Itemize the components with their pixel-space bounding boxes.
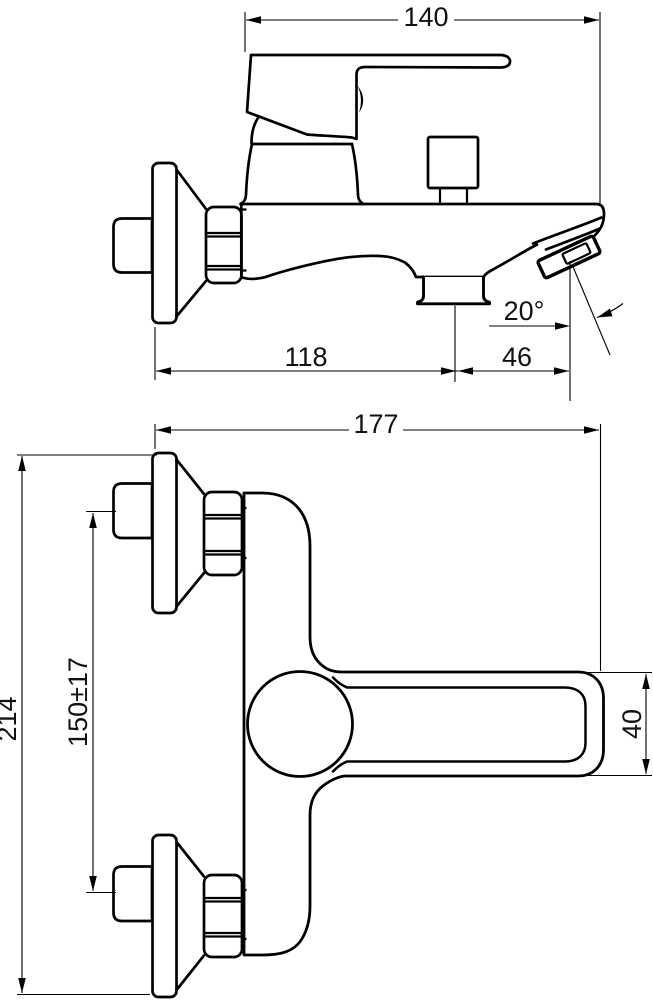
front-view (114, 453, 604, 997)
handle-back-curve (252, 117, 260, 144)
collar-right-edge (352, 144, 364, 204)
dim-150-arrow-top (89, 513, 97, 528)
check-valve-neck (440, 189, 467, 203)
dim-118-arrow-right (441, 367, 456, 375)
upper-escutcheon-plate (153, 453, 177, 613)
pipe-stub (114, 219, 153, 273)
dim-label-46: 46 (502, 342, 532, 372)
lower-hex-nut (204, 875, 242, 957)
dim-177-arrow-left (156, 426, 171, 434)
dim-40-arrow-top (642, 674, 650, 689)
dim-label-angle: 20° (504, 296, 545, 326)
dim-46: 46 (458, 342, 569, 375)
dim-214-arrow-bottom (18, 978, 26, 993)
lower-escutcheon-plate (153, 835, 177, 997)
escutcheon-cone-lower-edge (177, 281, 207, 317)
front-body-outline (244, 493, 604, 955)
dim-150-arrow-bottom (89, 876, 97, 891)
dim-label-40: 40 (617, 709, 647, 739)
dim-label-214: 214 (0, 696, 22, 741)
dim-140-arrow-right (584, 16, 599, 24)
drawing-page: 140 118 46 20° (0, 0, 653, 1000)
escutcheon-plate (153, 163, 177, 323)
lower-cone-top-edge (177, 842, 205, 877)
dim-46-arrow-left (458, 367, 473, 375)
handle-indicator-dot (358, 86, 364, 113)
dim-46-arrow-right (554, 367, 569, 375)
lower-cone-bottom-edge (177, 956, 205, 991)
technical-drawing-canvas: 140 118 46 20° (0, 0, 653, 1000)
escutcheon-cone-upper-edge (177, 170, 207, 210)
side-view-wall-mount (114, 163, 247, 323)
upper-cone-bottom-edge (177, 573, 205, 607)
dim-angle-20: 20° (489, 296, 623, 330)
side-view-diverter (418, 277, 490, 304)
dim-150: 150±17 (63, 512, 116, 893)
dim-118-arrow-left (156, 367, 171, 375)
dim-label-118: 118 (284, 342, 327, 372)
angle-leader-arrow (555, 322, 570, 330)
front-view-lower-wall-mount (114, 835, 247, 997)
dim-40-arrow-bottom (642, 759, 650, 774)
side-view-cartridge-collar (241, 144, 364, 204)
collar-left-edge (241, 144, 253, 204)
angle-arc-arrow (597, 309, 613, 318)
check-valve-square (428, 137, 478, 188)
side-view-check-valve (428, 137, 478, 203)
hex-nut (206, 207, 242, 283)
spout-axis-line (569, 256, 611, 355)
upper-pipe-stub (114, 484, 153, 539)
upper-hex-nut (204, 492, 242, 575)
dim-label-140: 140 (403, 2, 448, 32)
dim-140-arrow-left (246, 16, 261, 24)
dim-177-arrow-right (584, 426, 599, 434)
dim-label-177: 177 (353, 409, 398, 439)
side-view-handle (247, 55, 510, 143)
dim-214-arrow-top (18, 456, 26, 471)
front-view-upper-wall-mount (114, 453, 247, 613)
lower-pipe-stub (114, 867, 153, 922)
handle-lever (247, 55, 510, 139)
upper-cone-top-edge (177, 460, 205, 495)
dim-label-150: 150±17 (63, 657, 93, 747)
